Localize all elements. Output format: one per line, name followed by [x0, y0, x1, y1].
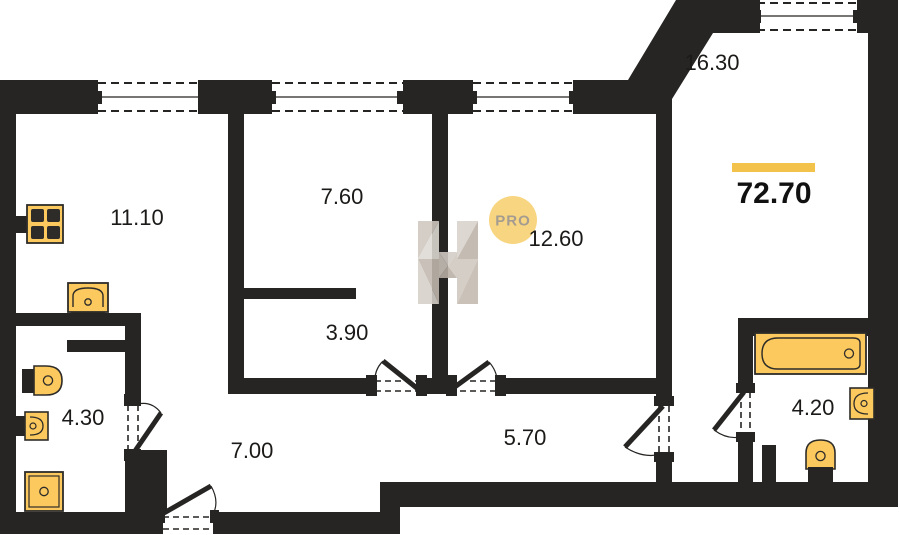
door-room-390 [366, 361, 427, 396]
wall-bottom-left-seg2 [213, 512, 398, 534]
washbasin-420-icon [850, 388, 874, 419]
wall-1110-760 [228, 114, 244, 394]
room-area-label-7-60: 7.60 [321, 184, 364, 210]
wall-top-seg-d [573, 80, 633, 114]
stove-icon [16, 205, 63, 243]
pro-badge-label: PRO [495, 213, 531, 230]
total-area-underline [732, 163, 815, 172]
room-area-label-12-60: 12.60 [528, 226, 583, 252]
wall-bottom-left-seg1 [0, 512, 163, 534]
wall-west-1630 [656, 99, 672, 402]
toilet-430-icon [22, 366, 62, 395]
room-area-label-3-90: 3.90 [326, 320, 369, 346]
room-area-label-11-10: 11.10 [110, 205, 163, 231]
wall-420-west-top [738, 336, 753, 390]
wall-top-seg-a [0, 80, 98, 114]
wall-430-right [125, 313, 141, 405]
wall-corridor-seg1 [244, 378, 375, 394]
room-area-label-16-30: 16.30 [684, 50, 739, 76]
wall-duct-420 [762, 445, 776, 485]
door-room-1260 [446, 362, 506, 396]
total-area-label: 72.70 [736, 177, 811, 211]
room-area-label-7-00: 7.00 [231, 438, 274, 464]
window-1 [94, 83, 207, 111]
shower-tray-icon [25, 472, 63, 511]
wall-420-west-bottom [738, 438, 753, 485]
wall-right [868, 0, 898, 507]
floor-plan: 11.10 7.60 12.60 16.30 3.90 4.30 7.00 5.… [0, 0, 900, 535]
bathtub-icon [755, 333, 866, 374]
floor-plan-svg [0, 0, 900, 535]
kitchen-sink-icon [68, 283, 108, 318]
wall-bottom-right [380, 482, 898, 507]
wall-390-thin [244, 288, 356, 299]
wall-top-pier-b [198, 80, 272, 114]
wall-left [0, 80, 16, 534]
door-bathroom-420 [714, 383, 755, 442]
door-hall-1630 [625, 396, 674, 462]
window-2 [268, 83, 405, 111]
wall-top-pier-c [403, 80, 473, 114]
washbasin-430-icon [16, 412, 48, 440]
room-area-label-4-30: 4.30 [62, 405, 105, 431]
room-area-label-4-20: 4.20 [792, 395, 835, 421]
window-4 [753, 3, 861, 30]
wall-corridor-seg3 [498, 378, 672, 394]
window-3 [469, 83, 577, 111]
toilet-420-icon [806, 440, 835, 483]
room-area-label-5-70: 5.70 [504, 425, 547, 451]
